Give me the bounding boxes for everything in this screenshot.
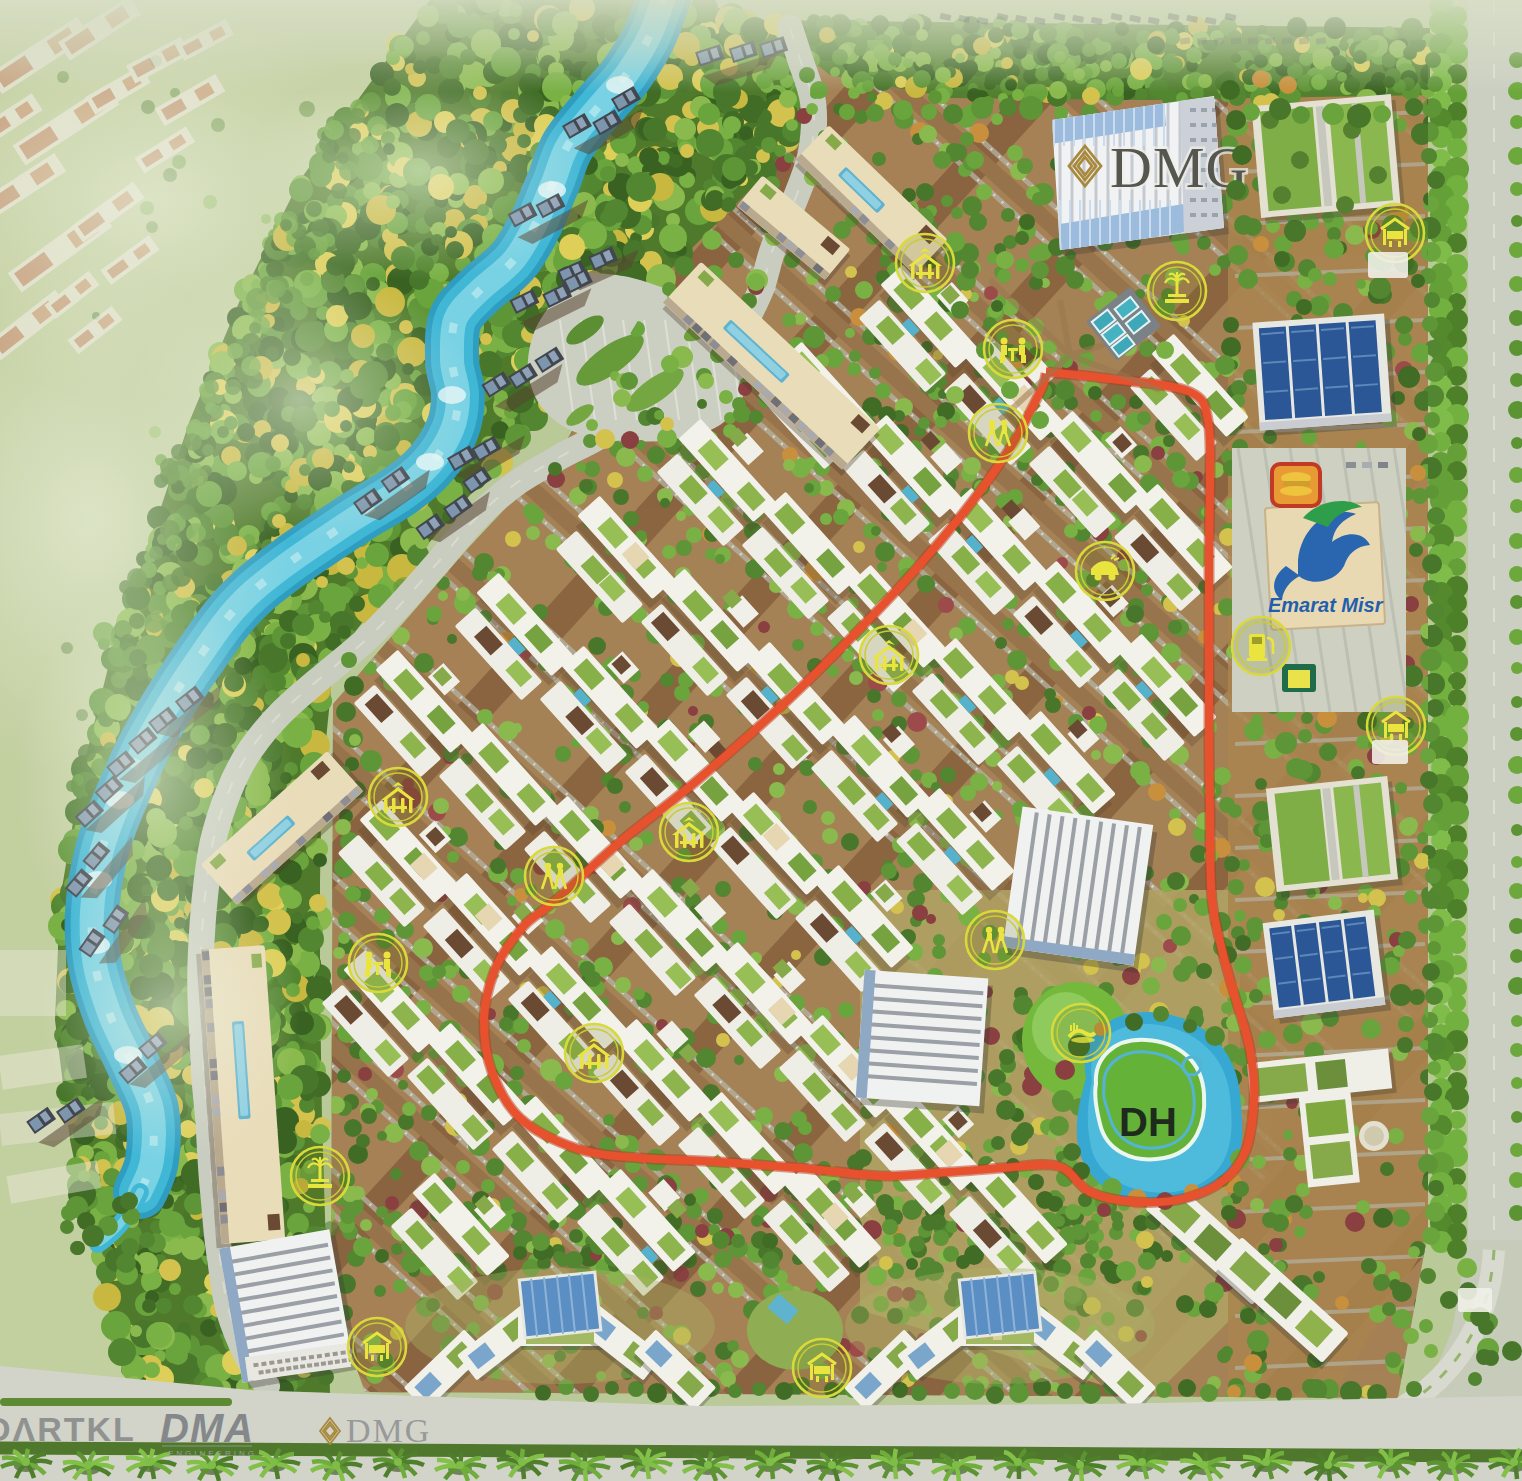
svg-text:DMA: DMA [160, 1406, 254, 1450]
svg-text:DH: DH [1119, 1100, 1177, 1144]
svg-text:DMG: DMG [346, 1412, 431, 1449]
svg-text:Emarat Misr: Emarat Misr [1268, 594, 1384, 616]
svg-text:ENGINEERING: ENGINEERING [168, 1449, 257, 1458]
svg-text:DΛRTKL: DΛRTKL [0, 1410, 136, 1448]
